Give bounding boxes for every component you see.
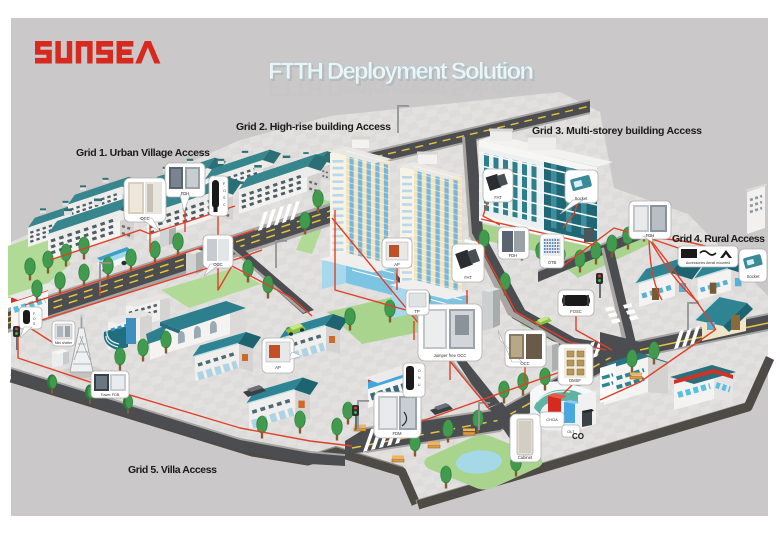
svg-text:DMSF: DMSF bbox=[569, 378, 581, 383]
svg-text:Mini shelter: Mini shelter bbox=[55, 341, 73, 345]
svg-text:FTTH Deployment Solution: FTTH Deployment Solution bbox=[268, 58, 534, 85]
svg-text:O: O bbox=[418, 369, 421, 373]
svg-text:F: F bbox=[33, 312, 35, 316]
svg-text:Grid 4. Rural Access: Grid 4. Rural Access bbox=[672, 233, 765, 245]
svg-text:Accessories Aerial mounted: Accessories Aerial mounted bbox=[686, 261, 730, 265]
svg-text:OCC: OCC bbox=[140, 216, 149, 221]
svg-text:FAT: FAT bbox=[494, 195, 502, 200]
svg-text:Socket: Socket bbox=[575, 196, 589, 201]
svg-text:Grid 2. High-rise building Acc: Grid 2. High-rise building Access bbox=[236, 121, 391, 133]
svg-text:OCC: OCC bbox=[520, 361, 529, 366]
svg-text:C: C bbox=[223, 203, 226, 207]
svg-text:FOSC: FOSC bbox=[570, 309, 582, 314]
svg-text:Grid 1. Urban Village Access: Grid 1. Urban Village Access bbox=[76, 147, 210, 159]
svg-text:CO: CO bbox=[572, 432, 584, 441]
svg-text:OCC: OCC bbox=[213, 262, 222, 267]
svg-text:Socket: Socket bbox=[747, 274, 761, 279]
svg-text:Tower FDB: Tower FDB bbox=[101, 393, 120, 397]
svg-text:CHGA: CHGA bbox=[546, 417, 558, 422]
svg-text:Jumper free OCC: Jumper free OCC bbox=[434, 353, 467, 358]
svg-text:Cabinet: Cabinet bbox=[518, 455, 533, 460]
svg-text:AP: AP bbox=[275, 365, 281, 370]
svg-text:FDH: FDH bbox=[509, 253, 518, 258]
svg-text:AP: AP bbox=[394, 262, 400, 267]
svg-text:FDH: FDH bbox=[181, 191, 190, 196]
svg-text:Grid 5. Villa Access: Grid 5. Villa Access bbox=[128, 464, 217, 476]
svg-text:S: S bbox=[33, 322, 35, 326]
svg-text:O: O bbox=[223, 189, 226, 193]
svg-text:FDH: FDH bbox=[646, 233, 655, 238]
svg-text:OTB: OTB bbox=[548, 260, 557, 265]
svg-text:Grid 3. Multi-storey building: Grid 3. Multi-storey building Access bbox=[532, 125, 702, 137]
svg-text:TP: TP bbox=[414, 309, 420, 314]
svg-text:FDM: FDM bbox=[392, 431, 402, 436]
svg-text:FAT: FAT bbox=[464, 275, 472, 280]
